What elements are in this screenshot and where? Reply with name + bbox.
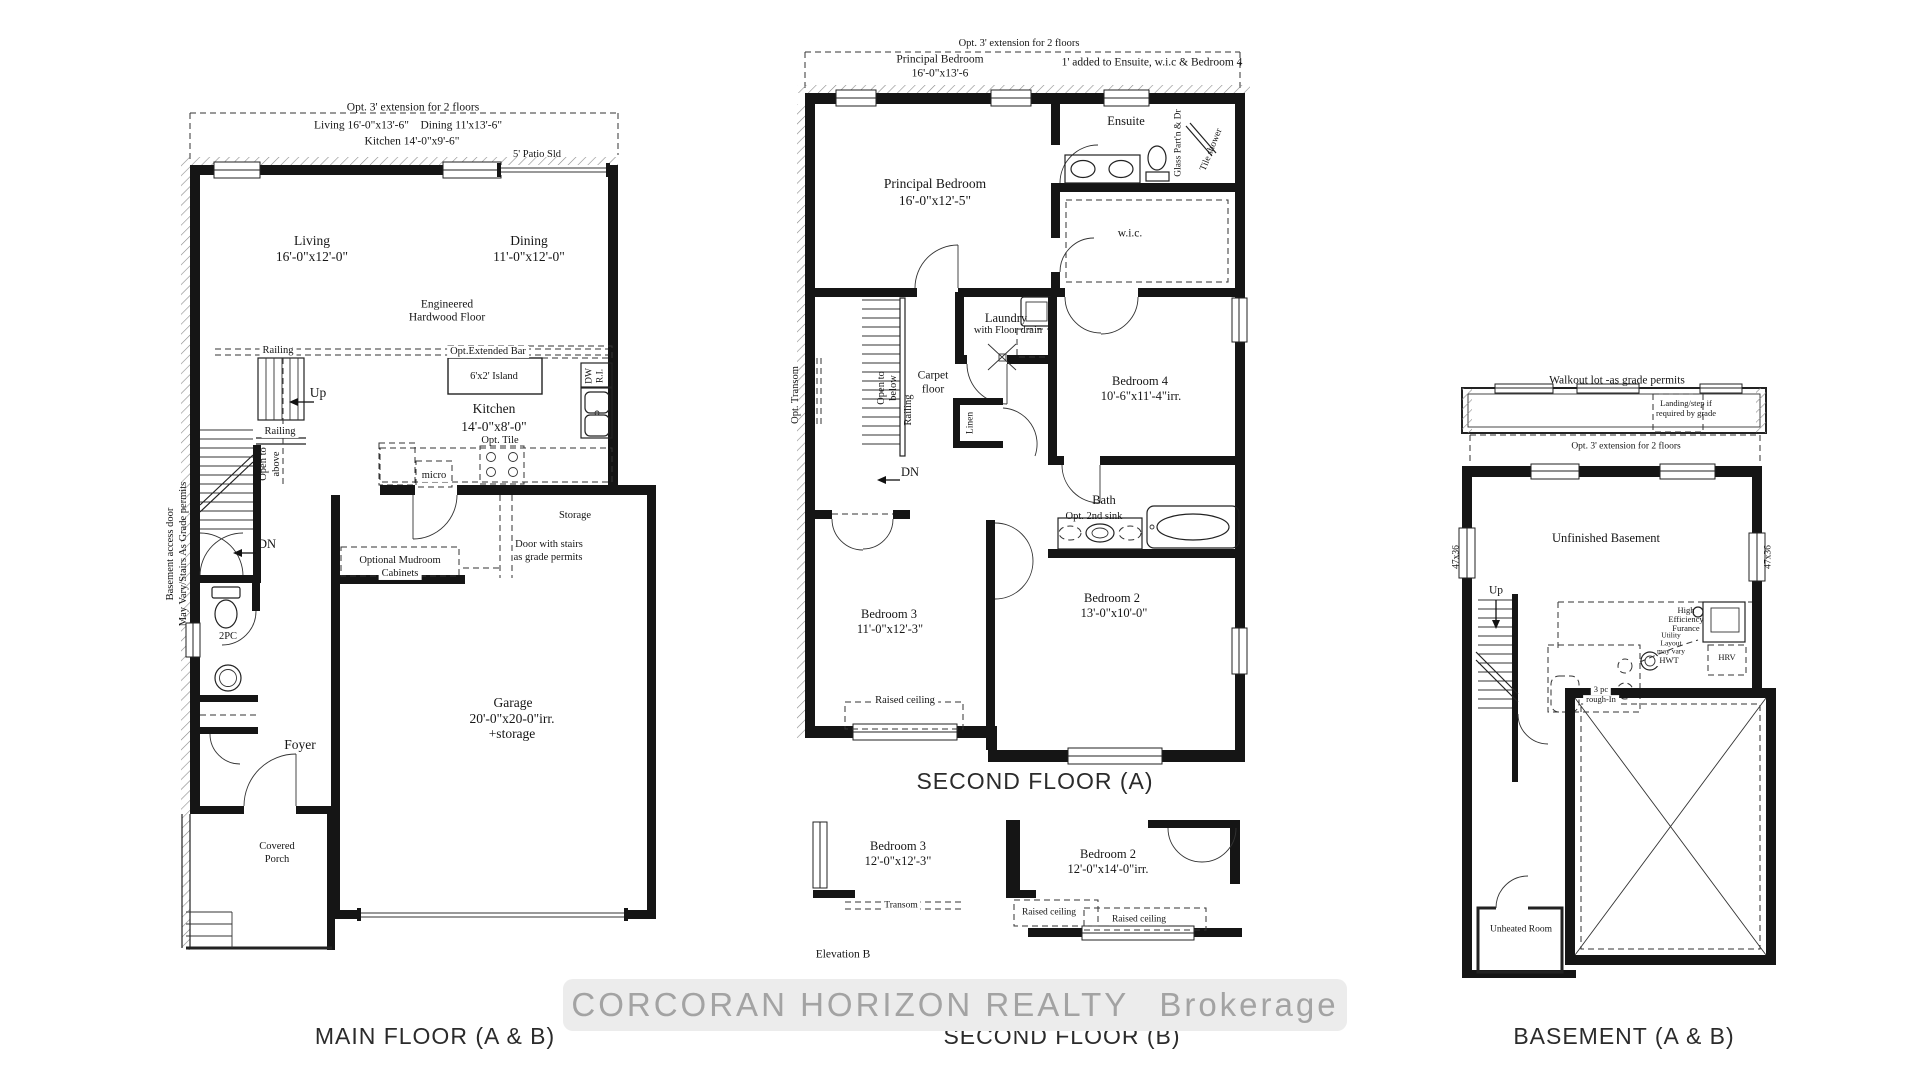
main-dining-name: Dining <box>510 233 548 249</box>
a-raised-ceiling-label: Raised ceiling <box>872 695 938 707</box>
bs-rough-in-label-2: rough-In <box>1583 695 1619 705</box>
bs-ext-note: Opt. 3' extension for 2 floors <box>1571 442 1680 453</box>
bs-landing-note-2: required by grade <box>1656 409 1716 419</box>
main-living-name: Living <box>294 233 330 249</box>
main-dining-dims: 11'-0"x12'-0" <box>493 249 565 265</box>
second-floor-a-title: SECOND FLOOR (A) <box>916 768 1153 794</box>
main-basement-access-note: Basement access door <box>165 508 177 601</box>
main-up-label: Up <box>310 385 327 401</box>
a-ext-note: Opt. 3' extension for 2 floors <box>959 38 1080 50</box>
a-open-below-2: below <box>888 375 900 401</box>
main-extended-bar-label: Opt.Extended Bar <box>447 346 529 358</box>
a-open-below-1: Open to <box>876 371 888 405</box>
main-mudroom-label-2: Cabinets <box>379 568 422 580</box>
main-door-stairs-note-2: as grade permits <box>514 552 583 564</box>
watermark-suffix: Brokerage <box>1159 986 1338 1024</box>
a-carpet-label-2: floor <box>922 383 944 396</box>
b-elevation-label: Elevation B <box>816 948 871 961</box>
main-ext-note: Opt. 3' extension for 2 floors <box>347 101 479 114</box>
main-dn-label: DN <box>258 537 276 551</box>
bs-up-label: Up <box>1489 584 1503 597</box>
a-opt-transom-label: Opt. Transom <box>790 366 802 424</box>
main-porch-label-2: Porch <box>265 854 290 866</box>
a-added-note: 1' added to Ensuite, w.i.c & Bedroom 4 <box>1062 56 1243 69</box>
a-ensuite-label: Ensuite <box>1107 114 1145 128</box>
b-bedroom2-dims: 12'-0"x14'-0"irr. <box>1067 862 1148 876</box>
a-principal-dims: 16'-0"x12'-5" <box>899 193 971 209</box>
main-railing-label-2: Railing <box>262 426 299 438</box>
main-patio-label: 5' Patio Sld <box>513 149 561 161</box>
b-raised-ceiling-1: Raised ceiling <box>1019 908 1079 919</box>
a-bedroom2-name: Bedroom 2 <box>1084 591 1140 605</box>
main-floor-note-2: Hardwood Floor <box>409 311 485 324</box>
a-bedroom2-dims: 13'-0"x10'-0" <box>1081 606 1148 620</box>
main-mudroom-label-1: Optional Mudroom <box>356 555 443 567</box>
main-garage-dims: 20'-0"x20-0"irr. <box>469 711 554 727</box>
main-micro-label: micro <box>419 470 450 482</box>
basement-title: BASEMENT (A & B) <box>1513 1023 1734 1049</box>
a-linen-label: Linen <box>966 412 977 434</box>
b-bedroom3-dims: 12'-0"x12'-3" <box>865 854 932 868</box>
a-opt-2nd-sink-label: Opt. 2nd sink <box>1066 511 1123 523</box>
main-storage-label: Storage <box>559 510 591 522</box>
a-railing-label: Railing <box>903 395 915 426</box>
watermark-brand: CORCORAN HORIZON REALTY <box>571 986 1129 1024</box>
a-ext-principal-dims: 16'-0"x13'-6 <box>912 67 969 80</box>
a-bedroom4-name: Bedroom 4 <box>1112 374 1168 388</box>
main-kitchen-dims: 14'-0"x8'-0" <box>461 419 526 435</box>
a-carpet-label-1: Carpet <box>918 369 949 382</box>
a-bedroom3-name: Bedroom 3 <box>861 607 917 621</box>
bs-hwt-label: HWT <box>1656 656 1681 666</box>
main-garage-note: +storage <box>489 726 536 742</box>
a-laundry-note: with Floor drain <box>974 325 1042 337</box>
floorplan-sheet: { "watermark": { "brand": "CORCORAN HORI… <box>0 0 1920 1075</box>
a-dn-label: DN <box>901 465 919 479</box>
main-railing-label-1: Railing <box>260 345 297 357</box>
a-principal-name: Principal Bedroom <box>884 176 986 192</box>
main-opt-tile-label: Opt. Tile <box>481 435 518 447</box>
a-glass-partition-note: Glass Part'n & Dr <box>1174 109 1185 176</box>
a-bedroom4-dims: 10'-6"x11'-4"irr. <box>1101 389 1182 403</box>
main-porch-label-1: Covered <box>259 841 295 853</box>
watermark-bar: CORCORAN HORIZON REALTY Brokerage <box>563 979 1347 1031</box>
main-kitchen-name: Kitchen <box>473 401 516 417</box>
main-floor-drawing <box>181 113 656 950</box>
main-garage-name: Garage <box>494 695 533 711</box>
main-ext-dims-living-dining: Living 16'-0"x13'-6" Dining 11'x13'-6" <box>314 119 502 132</box>
main-door-stairs-note-1: Door with stairs <box>515 539 583 551</box>
bs-walkout-note: Walkout lot -as grade permits <box>1549 374 1685 387</box>
a-wic-label: w.i.c. <box>1118 227 1142 240</box>
main-floor-note-1: Engineered <box>421 298 473 311</box>
bs-window-size-left: 47x36 <box>1452 545 1463 569</box>
main-2pc-label: 2PC <box>219 631 237 643</box>
a-bedroom3-dims: 11'-0"x12'-3" <box>857 622 923 636</box>
main-dw-label: DW <box>585 368 596 384</box>
a-bath-label: Bath <box>1092 493 1116 507</box>
bs-window-size-right: 47x36 <box>1764 545 1775 569</box>
main-ext-dims-kitchen: Kitchen 14'-0"x9'-6" <box>365 135 460 148</box>
main-floor-title: MAIN FLOOR (A & B) <box>315 1023 555 1049</box>
main-ri-label: R.I. <box>596 369 607 383</box>
b-bedroom3-name: Bedroom 3 <box>870 839 926 853</box>
b-bedroom2-name: Bedroom 2 <box>1080 847 1136 861</box>
main-living-dims: 16'-0"x12'-0" <box>276 249 348 265</box>
b-transom-label: Transom <box>881 901 920 912</box>
main-open-above-2: above <box>271 451 283 476</box>
b-raised-ceiling-2: Raised ceiling <box>1109 915 1169 926</box>
a-ext-principal-name: Principal Bedroom <box>896 53 983 66</box>
main-may-vary-note: May Vary/Stairs As Grade permits <box>178 482 190 626</box>
bs-unfinished-label: Unfinished Basement <box>1552 531 1660 545</box>
main-island-label: 6'x2' Island <box>470 371 518 383</box>
bs-unheated-label: Unheated Room <box>1490 925 1552 936</box>
a-laundry-name: Laundry <box>985 311 1027 325</box>
bs-hrv-label: HRV <box>1718 653 1735 663</box>
main-foyer-label: Foyer <box>284 737 316 753</box>
main-open-above-1: Open to <box>258 447 270 481</box>
basement-drawing <box>1459 384 1776 978</box>
